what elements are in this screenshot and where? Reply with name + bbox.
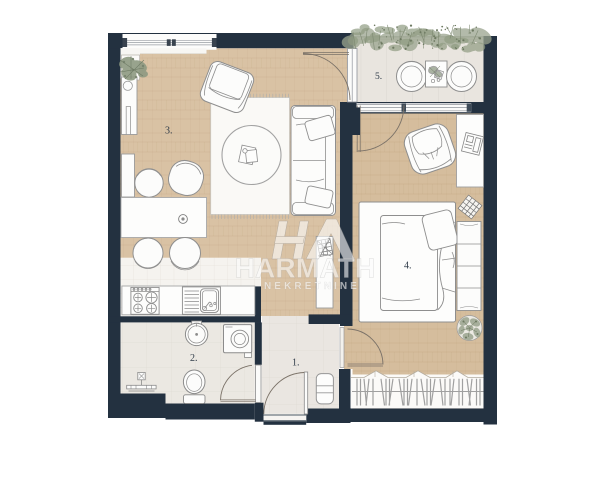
svg-text:2.: 2.: [190, 353, 198, 364]
svg-text:1.: 1.: [292, 358, 300, 369]
svg-text:5.: 5.: [375, 72, 382, 82]
svg-text:HARMATH: HARMATH: [235, 253, 376, 284]
svg-text:3.: 3.: [165, 126, 173, 137]
svg-text:4.: 4.: [404, 261, 412, 272]
svg-text:NEKRETNINE: NEKRETNINE: [264, 281, 360, 292]
